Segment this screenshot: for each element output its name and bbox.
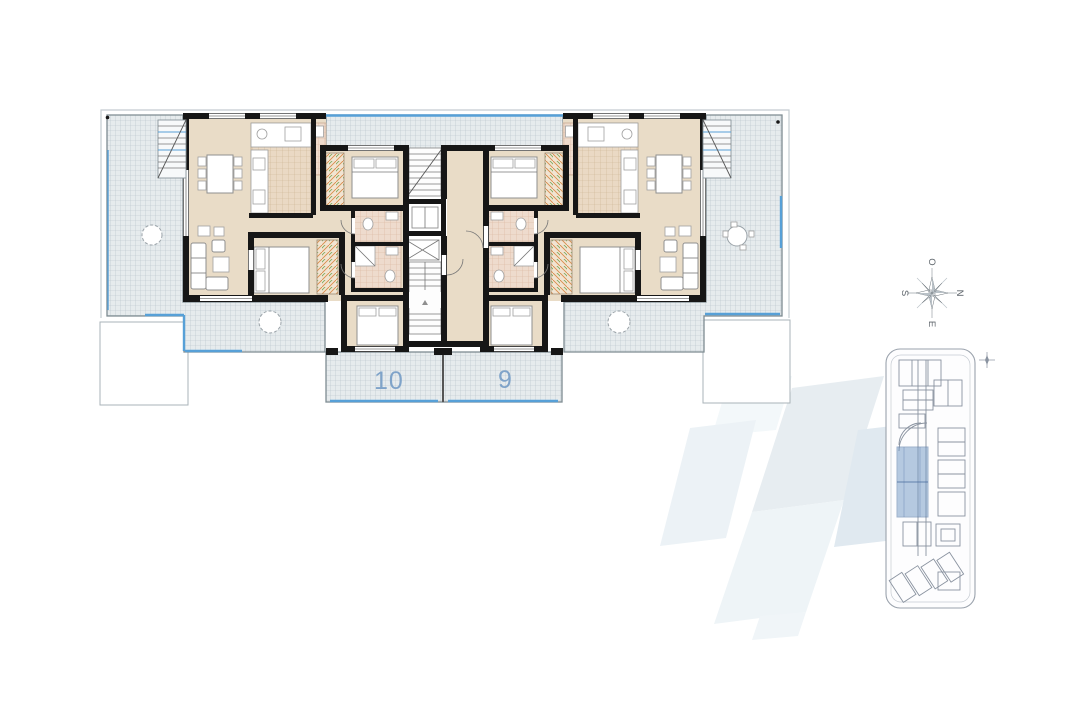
background-watermark <box>660 376 918 640</box>
compass-east-label: E <box>926 321 937 327</box>
main-floor-plan: 10 9 <box>100 110 790 405</box>
floor-plan-drawing: 10 9 O N E S <box>0 0 1080 720</box>
compass-north-label: N <box>954 290 965 297</box>
unit-10-label: 10 <box>374 367 404 395</box>
elevator <box>404 199 446 236</box>
site-plan-compass-icon <box>979 352 995 368</box>
stair-lower <box>409 262 441 334</box>
compass-west-label: O <box>926 258 937 265</box>
platform-right <box>703 320 790 403</box>
platform-left <box>100 322 188 405</box>
compass-south-label: S <box>899 290 910 296</box>
unit-9-label: 9 <box>498 366 513 394</box>
floor-plan-page: 10 9 O N E S <box>0 0 1080 720</box>
compass-rose: O N E S <box>899 258 965 327</box>
site-key-plan <box>886 349 995 610</box>
site-plan-highlight <box>897 447 928 517</box>
vent-shaft <box>406 240 439 260</box>
corridor <box>447 151 483 347</box>
